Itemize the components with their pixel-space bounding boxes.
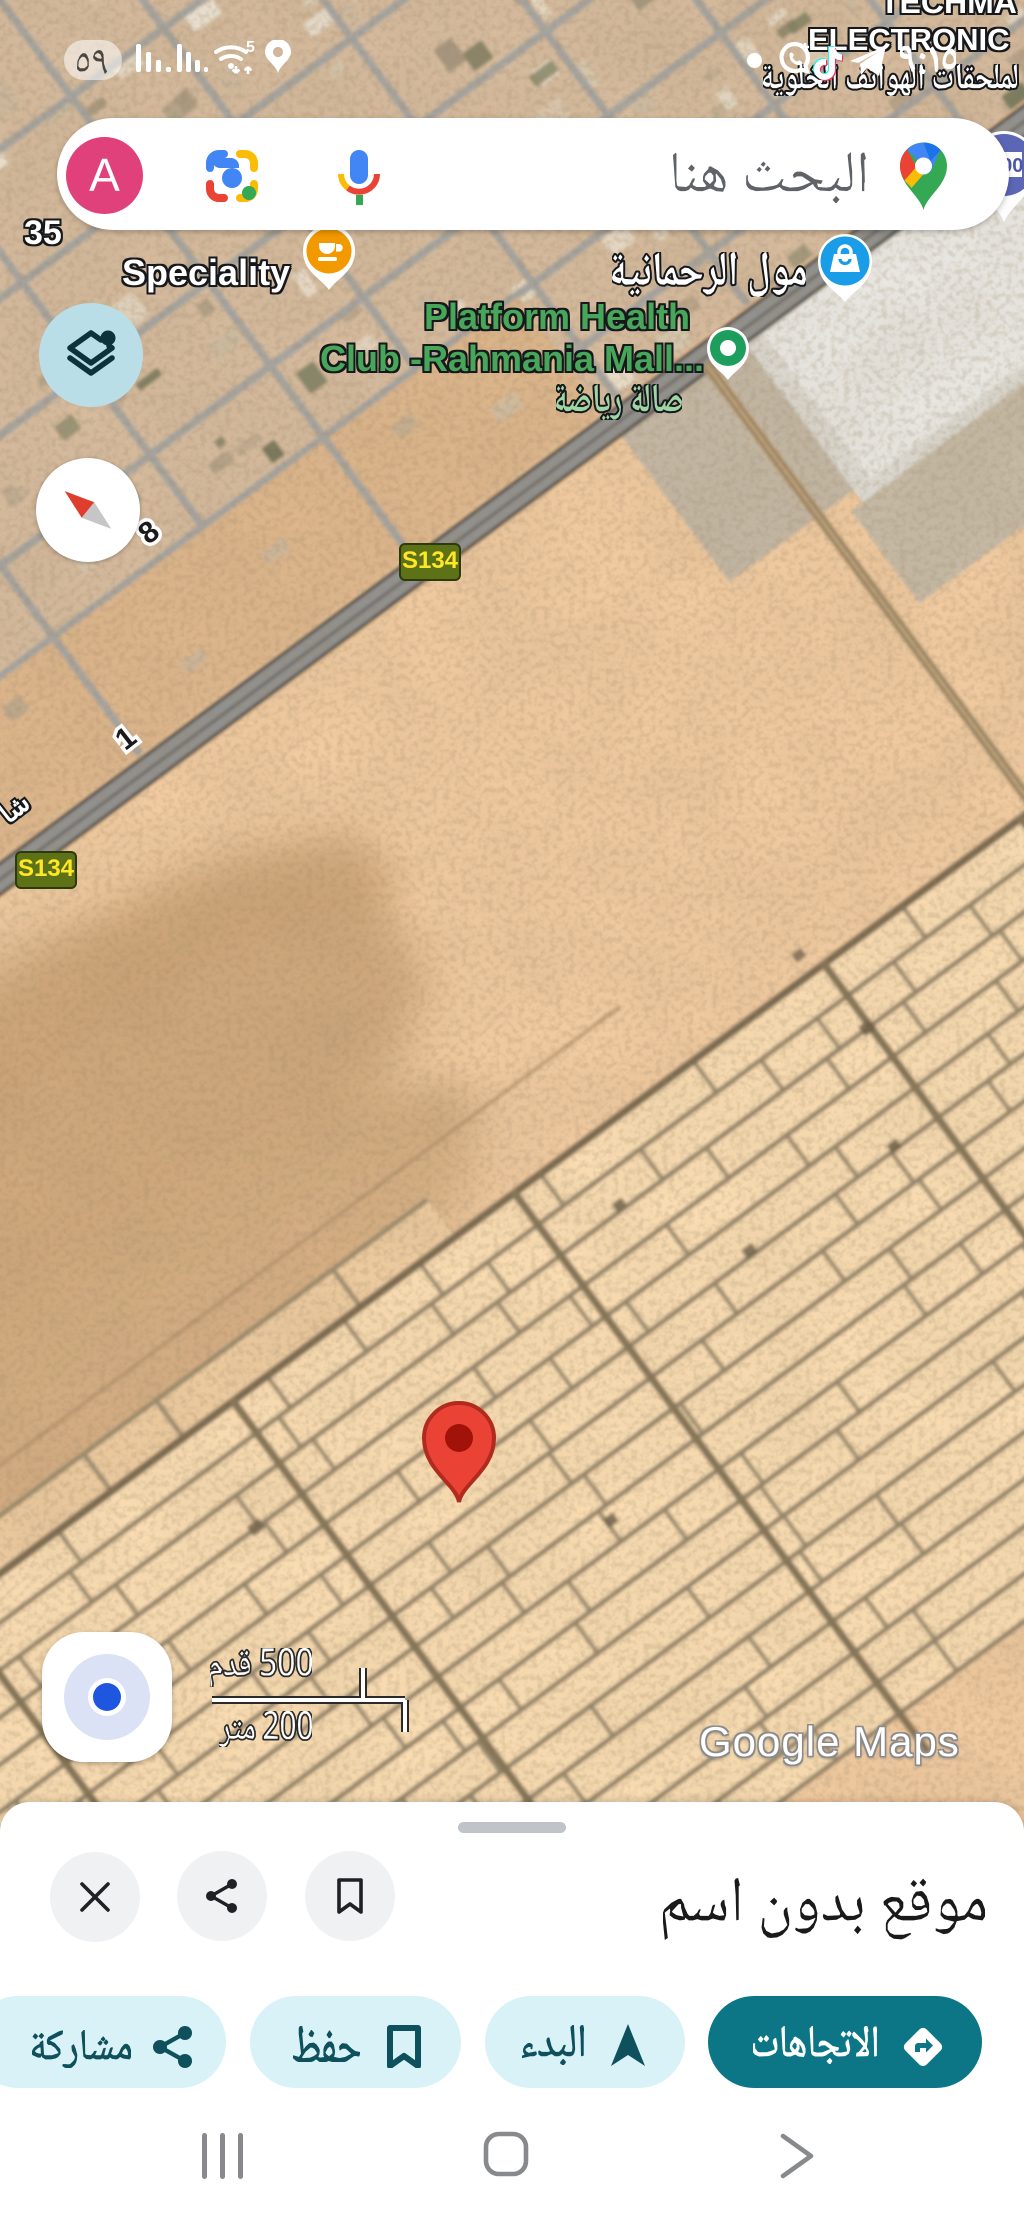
svg-text:5: 5	[246, 40, 255, 56]
